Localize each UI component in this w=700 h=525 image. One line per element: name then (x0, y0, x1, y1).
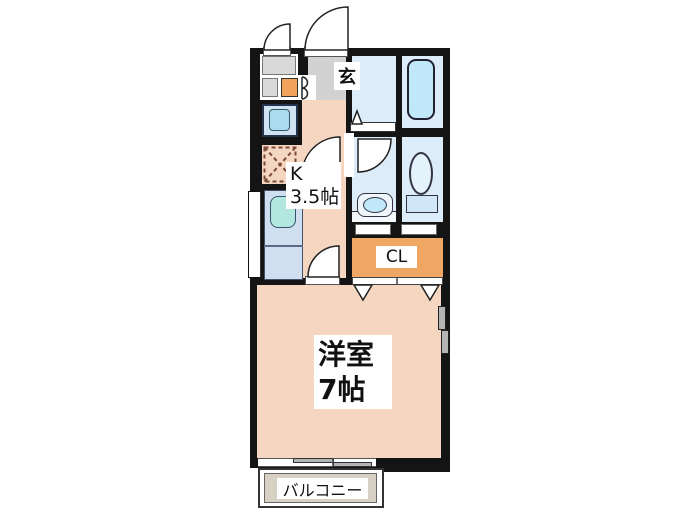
entrance-door-arc (305, 7, 348, 50)
kitchen-type-text: K (290, 163, 341, 186)
closet-door-triangle-left (354, 285, 372, 300)
washroom-door-arc (358, 139, 391, 172)
balcony-label-text: バルコニー (283, 477, 363, 501)
closet-label-text: CL (386, 247, 407, 267)
western-room-size-text: 7帖 (318, 372, 392, 407)
kitchen-room-door-arc (308, 246, 339, 277)
storage-door-arc (264, 24, 290, 50)
closet-label: CL (376, 246, 417, 268)
balcony-label: バルコニー (277, 478, 368, 499)
genkan-label-text: 玄 (338, 63, 356, 89)
kitchen-label: K 3.5帖 (286, 162, 341, 209)
genkan-label: 玄 (334, 62, 360, 90)
western-room-label: 洋室 7帖 (314, 335, 392, 409)
closet-door-triangle-right (421, 285, 439, 300)
western-room-name-text: 洋室 (318, 337, 392, 372)
kitchen-size-text: 3.5帖 (290, 186, 341, 209)
bath-door-triangle (352, 111, 362, 124)
floor-plan: 玄 K 3.5帖 CL 洋室 7帖 バルコニー (0, 0, 700, 525)
